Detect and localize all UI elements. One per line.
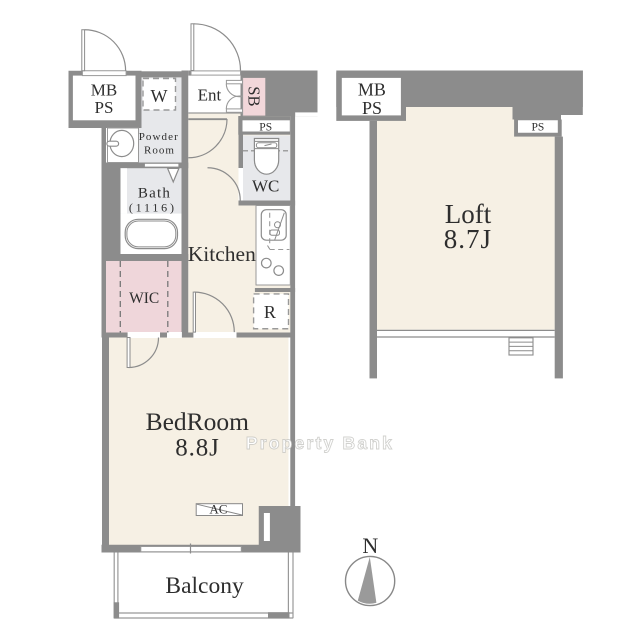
svg-text:Bath: Bath	[138, 185, 171, 201]
svg-text:Property Bank: Property Bank	[246, 433, 394, 453]
svg-text:Ent: Ent	[198, 85, 222, 104]
svg-text:WC: WC	[252, 177, 279, 196]
svg-text:Room: Room	[144, 144, 175, 156]
svg-text:N: N	[362, 533, 378, 558]
svg-text:AC: AC	[209, 501, 227, 516]
svg-text:BedRoom: BedRoom	[146, 407, 250, 436]
svg-text:SB: SB	[245, 86, 264, 106]
svg-text:MB: MB	[91, 81, 117, 100]
svg-text:Powder: Powder	[139, 131, 179, 143]
svg-text:Kitchen: Kitchen	[188, 242, 256, 266]
svg-text:W: W	[151, 86, 168, 106]
svg-text:(1116): (1116)	[129, 201, 177, 215]
svg-text:MB: MB	[358, 79, 386, 99]
svg-text:8.8J: 8.8J	[175, 435, 220, 462]
svg-text:PS: PS	[259, 122, 272, 134]
svg-text:PS: PS	[532, 122, 545, 134]
svg-text:8.7J: 8.7J	[444, 224, 492, 254]
svg-text:PS: PS	[362, 98, 382, 118]
svg-text:PS: PS	[95, 98, 114, 117]
svg-text:WIC: WIC	[129, 290, 159, 307]
svg-text:R: R	[264, 302, 276, 322]
svg-text:Balcony: Balcony	[165, 573, 244, 599]
